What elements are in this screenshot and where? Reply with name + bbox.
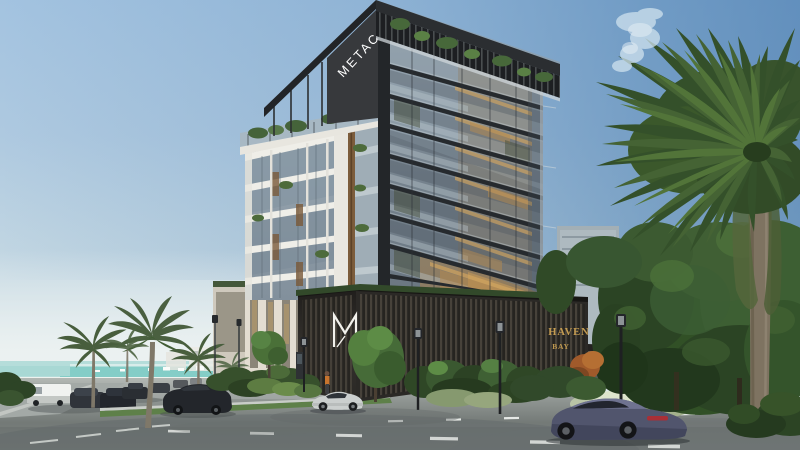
svg-text:HAVEN: HAVEN: [548, 327, 590, 338]
svg-text:BAY: BAY: [552, 342, 570, 351]
